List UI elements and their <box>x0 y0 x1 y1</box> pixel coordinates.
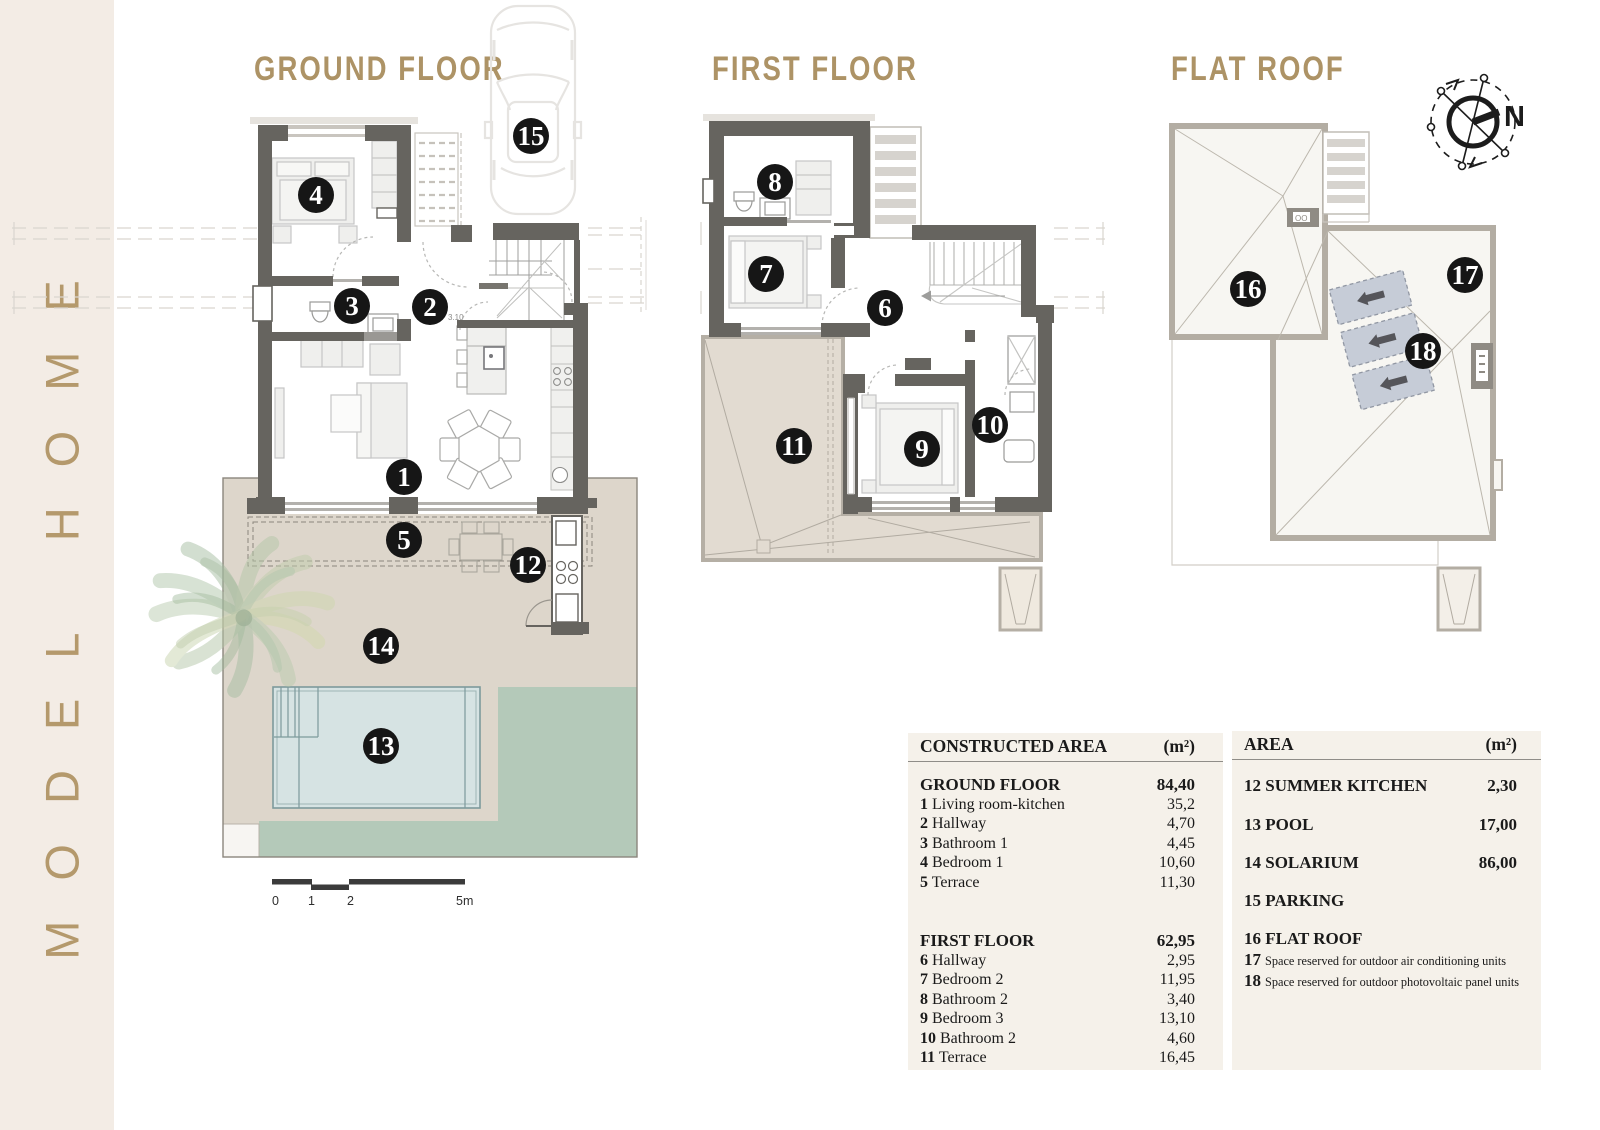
svg-text:10: 10 <box>977 410 1004 440</box>
svg-text:11: 11 <box>781 431 807 461</box>
svg-text:14: 14 <box>368 631 395 661</box>
svg-text:4: 4 <box>309 180 323 210</box>
svg-text:1: 1 <box>397 462 411 492</box>
svg-text:8: 8 <box>768 167 782 197</box>
svg-text:3.10: 3.10 <box>448 313 464 322</box>
svg-text:17: 17 <box>1452 260 1479 290</box>
svg-text:2: 2 <box>423 292 437 322</box>
svg-text:12: 12 <box>515 550 542 580</box>
svg-text:3: 3 <box>345 291 359 321</box>
svg-text:18: 18 <box>1410 336 1437 366</box>
svg-text:13: 13 <box>368 731 395 761</box>
svg-text:N: N <box>1504 101 1525 133</box>
svg-text:16: 16 <box>1235 274 1262 304</box>
svg-text:9: 9 <box>915 434 929 464</box>
svg-text:15: 15 <box>518 121 545 151</box>
svg-text:5: 5 <box>397 525 411 555</box>
svg-text:2: 2 <box>347 894 354 908</box>
svg-text:5m: 5m <box>456 894 473 908</box>
svg-text:7: 7 <box>759 259 773 289</box>
svg-text:0: 0 <box>272 894 279 908</box>
svg-text:1: 1 <box>308 894 315 908</box>
svg-text:6: 6 <box>878 293 892 323</box>
svg-text:OO: OO <box>1295 214 1307 223</box>
